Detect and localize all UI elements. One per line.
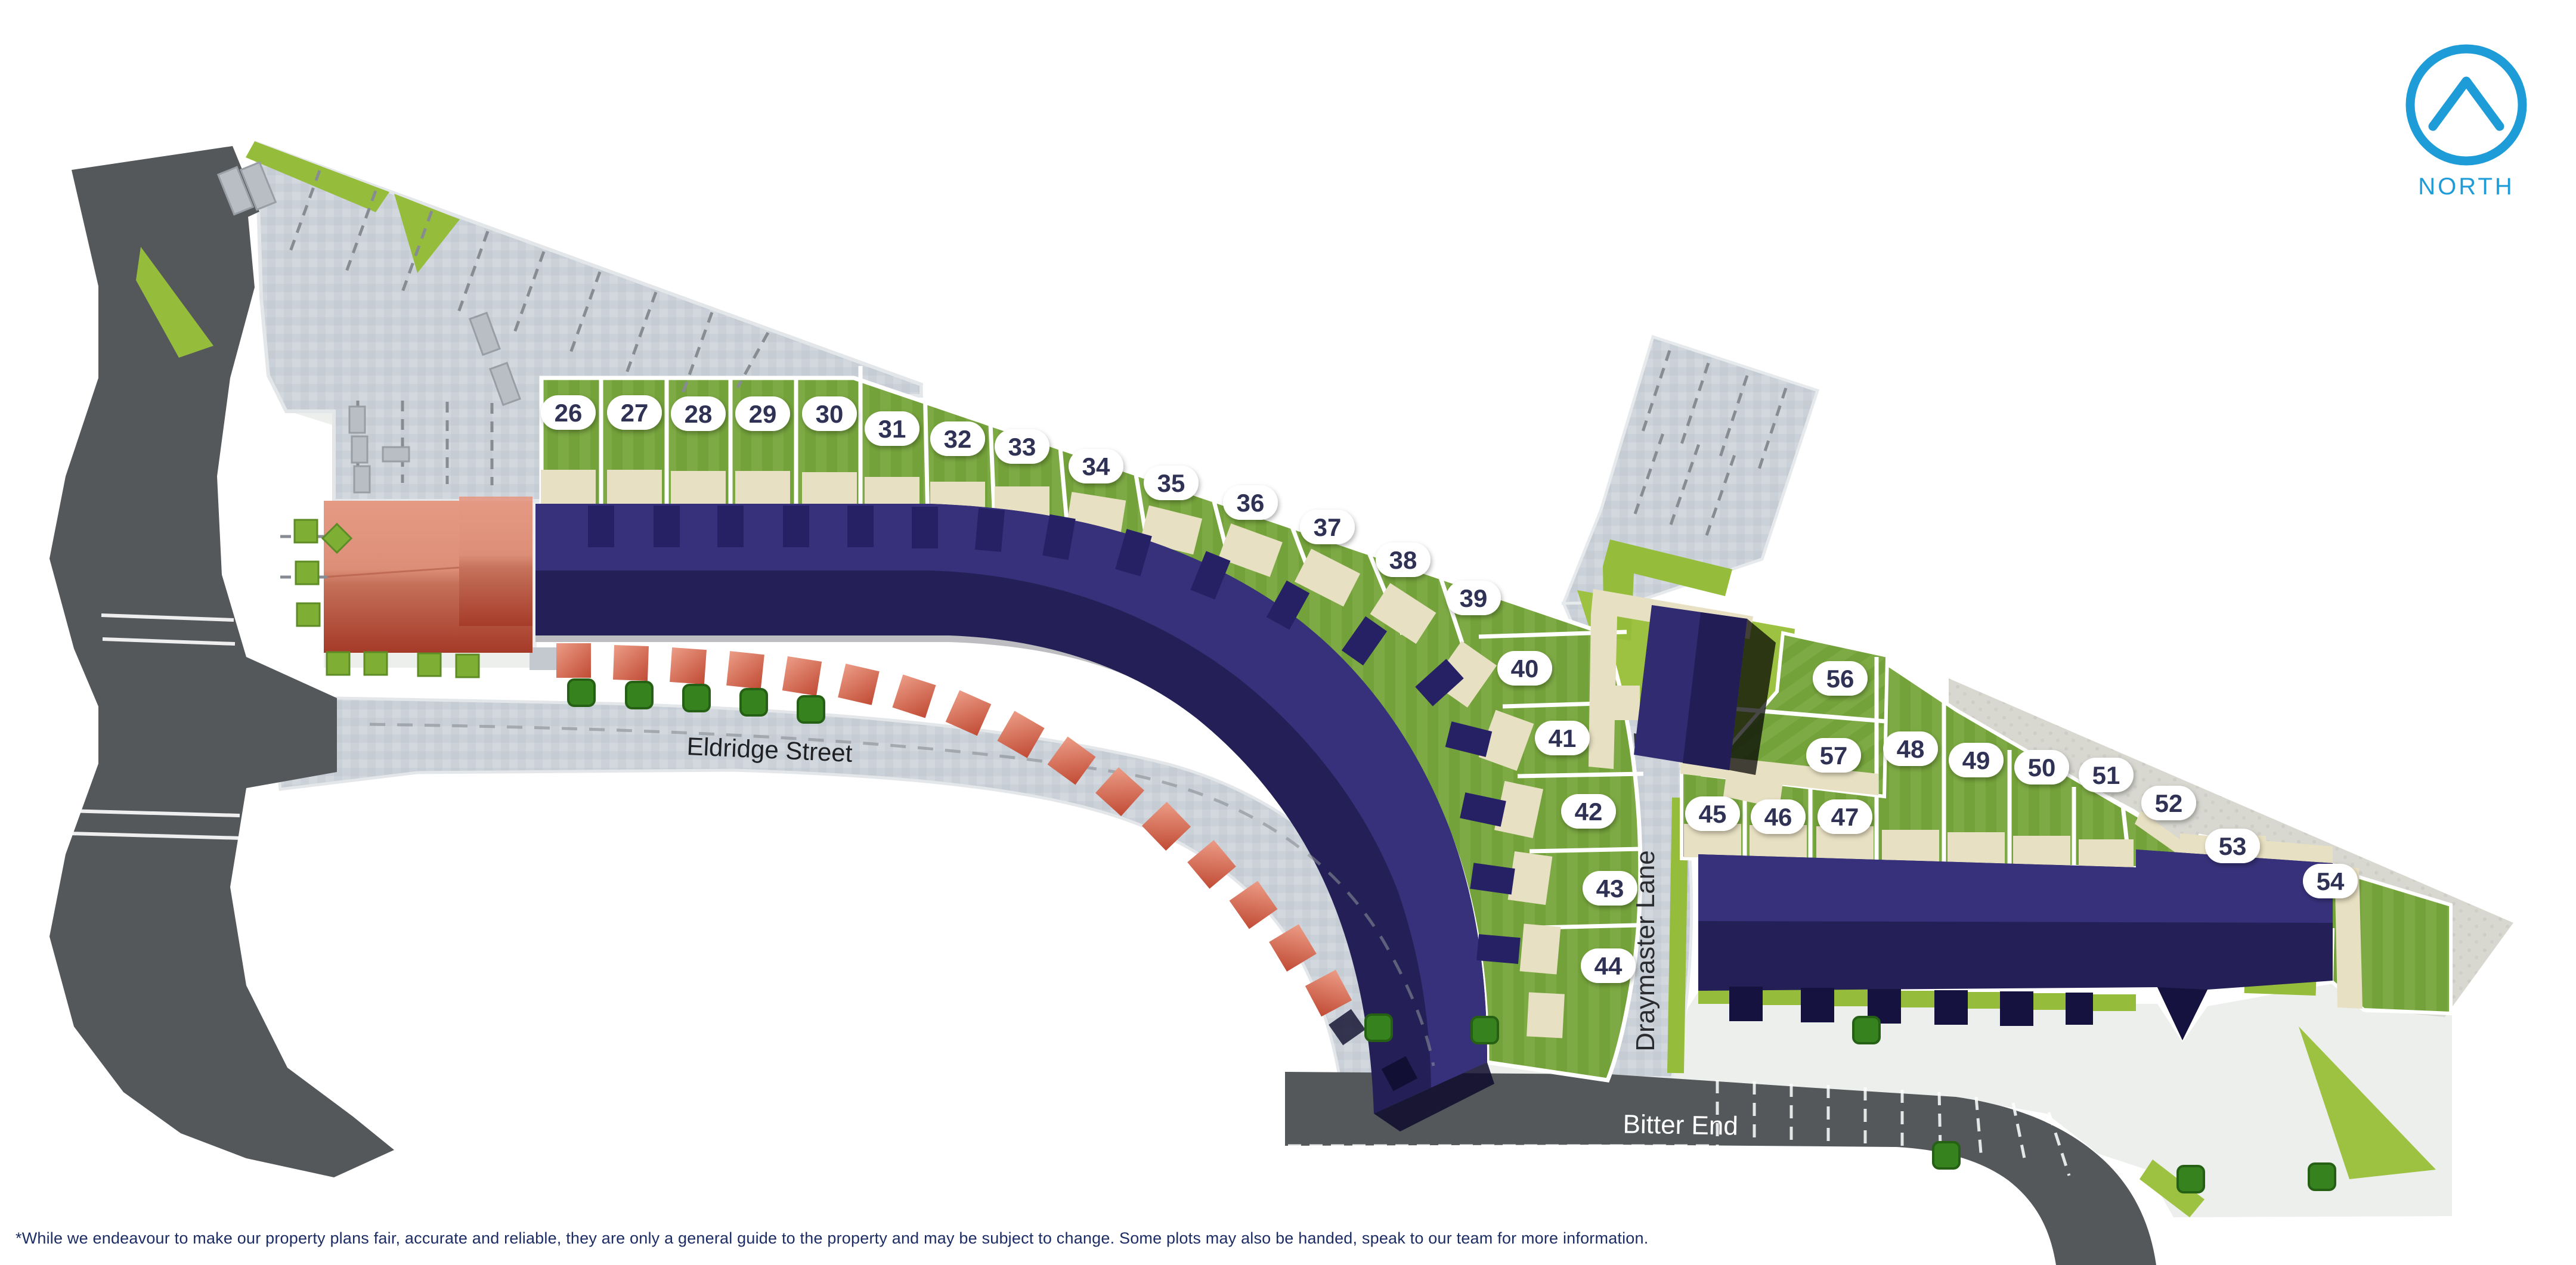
svg-text:36: 36 xyxy=(1237,489,1265,517)
site-plan: 2627282930313233343536373839404142434445… xyxy=(0,0,2576,1265)
plot-badge-38[interactable]: 38 xyxy=(1376,542,1431,577)
svg-text:45: 45 xyxy=(1699,800,1727,828)
svg-text:38: 38 xyxy=(1389,546,1417,574)
plot-badge-28[interactable]: 28 xyxy=(671,396,726,431)
north-compass-label: NORTH xyxy=(2418,173,2514,200)
existing-building xyxy=(324,497,532,653)
street-label-bitter-end: Bitter End xyxy=(1623,1109,1738,1140)
plot-badge-32[interactable]: 32 xyxy=(930,421,985,456)
svg-text:43: 43 xyxy=(1596,875,1624,903)
svg-text:47: 47 xyxy=(1831,803,1859,831)
svg-text:54: 54 xyxy=(2317,867,2345,895)
svg-text:51: 51 xyxy=(2092,761,2120,789)
svg-text:28: 28 xyxy=(685,400,713,428)
svg-text:35: 35 xyxy=(1157,469,1185,497)
svg-text:52: 52 xyxy=(2155,789,2183,817)
svg-text:50: 50 xyxy=(2028,754,2056,782)
svg-text:27: 27 xyxy=(621,399,649,427)
plot-badge-51[interactable]: 51 xyxy=(2079,758,2134,792)
svg-text:46: 46 xyxy=(1764,803,1792,831)
svg-text:53: 53 xyxy=(2219,832,2247,860)
plot-badge-35[interactable]: 35 xyxy=(1144,466,1199,500)
plot-badge-33[interactable]: 33 xyxy=(995,429,1049,464)
svg-text:26: 26 xyxy=(555,399,583,427)
plot-badge-27[interactable]: 27 xyxy=(607,395,662,430)
svg-text:34: 34 xyxy=(1082,452,1110,480)
svg-text:33: 33 xyxy=(1008,433,1036,461)
plot-badge-40[interactable]: 40 xyxy=(1497,651,1552,686)
plot-badge-41[interactable]: 41 xyxy=(1535,721,1590,755)
svg-text:31: 31 xyxy=(878,415,906,443)
plot-badge-31[interactable]: 31 xyxy=(865,411,919,446)
svg-text:41: 41 xyxy=(1549,724,1577,752)
plot-badge-48[interactable]: 48 xyxy=(1883,731,1938,766)
svg-text:37: 37 xyxy=(1314,513,1342,541)
plot-badge-34[interactable]: 34 xyxy=(1069,449,1123,483)
north-compass: NORTH xyxy=(2410,49,2522,200)
plot-badge-49[interactable]: 49 xyxy=(1949,743,2004,777)
svg-text:57: 57 xyxy=(1820,742,1848,770)
plot-badge-54[interactable]: 54 xyxy=(2303,864,2358,898)
plot-badge-36[interactable]: 36 xyxy=(1223,485,1278,520)
plot-badge-57[interactable]: 57 xyxy=(1806,738,1861,773)
svg-text:30: 30 xyxy=(816,400,844,428)
north-arrow-icon xyxy=(2433,81,2500,126)
plot-badge-53[interactable]: 53 xyxy=(2205,829,2260,863)
street-label-draymaster-lane: Draymaster Lane xyxy=(1631,850,1660,1051)
plot-badge-52[interactable]: 52 xyxy=(2141,786,2196,820)
svg-text:29: 29 xyxy=(749,400,777,428)
plot-badge-46[interactable]: 46 xyxy=(1751,799,1806,834)
plot-badge-45[interactable]: 45 xyxy=(1685,796,1740,831)
plot-badge-47[interactable]: 47 xyxy=(1818,799,1872,834)
plot-badge-44[interactable]: 44 xyxy=(1581,948,1636,983)
disclaimer-text: *While we endeavour to make our property… xyxy=(16,1229,1648,1248)
court-building xyxy=(1634,605,1776,775)
svg-text:40: 40 xyxy=(1511,655,1539,683)
svg-text:48: 48 xyxy=(1897,735,1925,763)
plot-badge-39[interactable]: 39 xyxy=(1446,581,1501,615)
svg-text:39: 39 xyxy=(1460,584,1488,612)
plot-badge-42[interactable]: 42 xyxy=(1561,794,1616,829)
svg-text:32: 32 xyxy=(944,425,972,453)
svg-text:44: 44 xyxy=(1594,952,1623,980)
plot-badge-30[interactable]: 30 xyxy=(802,396,857,431)
svg-text:42: 42 xyxy=(1575,798,1603,826)
plot-badge-56[interactable]: 56 xyxy=(1813,661,1868,696)
svg-text:49: 49 xyxy=(1962,746,1990,774)
plot-badge-29[interactable]: 29 xyxy=(735,396,790,431)
plot-badge-37[interactable]: 37 xyxy=(1300,510,1355,544)
plot-badge-50[interactable]: 50 xyxy=(2014,750,2069,785)
north-compass-circle xyxy=(2410,49,2522,161)
plot-badge-43[interactable]: 43 xyxy=(1583,871,1637,906)
svg-text:56: 56 xyxy=(1826,665,1854,693)
plot-badge-26[interactable]: 26 xyxy=(541,395,596,430)
